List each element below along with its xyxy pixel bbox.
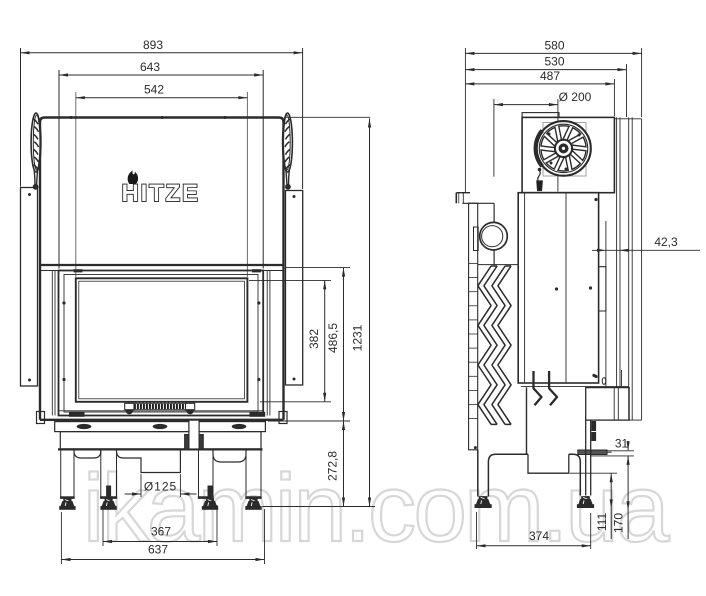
svg-text:Ø 200: Ø 200 — [559, 90, 592, 104]
svg-text:486,5: 486,5 — [326, 323, 340, 353]
svg-text:487: 487 — [540, 69, 560, 83]
svg-text:42,3: 42,3 — [654, 235, 678, 249]
svg-text:HITZE: HITZE — [122, 180, 200, 207]
svg-text:637: 637 — [148, 543, 168, 557]
svg-text:Ø125: Ø125 — [144, 480, 177, 494]
svg-text:170: 170 — [612, 513, 626, 533]
svg-text:1231: 1231 — [351, 324, 365, 351]
svg-text:272,8: 272,8 — [326, 451, 340, 481]
svg-text:111: 111 — [595, 513, 609, 532]
svg-text:542: 542 — [144, 83, 164, 97]
svg-text:893: 893 — [143, 38, 163, 52]
svg-text:530: 530 — [544, 55, 564, 69]
svg-text:643: 643 — [140, 60, 160, 74]
svg-text:374: 374 — [529, 529, 549, 543]
svg-text:367: 367 — [151, 525, 171, 539]
svg-text:382: 382 — [307, 329, 321, 349]
svg-text:31: 31 — [615, 436, 629, 450]
svg-text:580: 580 — [544, 38, 564, 52]
